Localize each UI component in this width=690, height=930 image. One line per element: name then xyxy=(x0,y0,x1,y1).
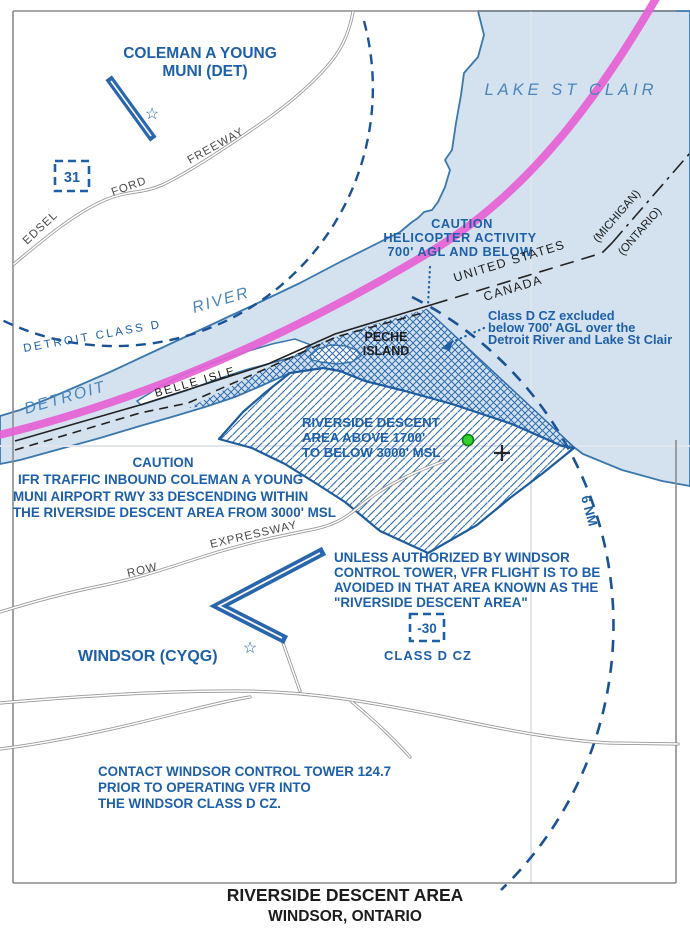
svg-text:MUNI AIRPORT RWY 33 DESCENDING: MUNI AIRPORT RWY 33 DESCENDING WITHIN xyxy=(13,489,308,504)
freeway-road-label: FREEWAY xyxy=(186,126,247,167)
coleman-airport-name-line1: COLEMAN A YOUNG xyxy=(123,45,277,62)
svg-text:CONTACT WINDSOR CONTROL TOWER: CONTACT WINDSOR CONTROL TOWER 124.7 xyxy=(98,764,391,779)
svg-text:HELICOPTER ACTIVITY: HELICOPTER ACTIVITY xyxy=(383,230,536,245)
detroit-altitude-box-label: 31 xyxy=(64,170,80,186)
windsor-airport-name: WINDSOR (CYQG) xyxy=(78,648,218,665)
lake-st-clair-label: LAKE ST CLAIR xyxy=(484,81,657,99)
peche-island-label-line1: PECHE xyxy=(364,330,407,344)
detroit-airport-star-icon: ☆ xyxy=(145,106,159,123)
svg-text:AREA ABOVE 1700': AREA ABOVE 1700' xyxy=(302,430,425,445)
coleman-airport-name-line2: MUNI (DET) xyxy=(162,63,247,80)
svg-text:Detroit River and Lake St Clai: Detroit River and Lake St Clair xyxy=(488,332,672,347)
riverside-descent-area-chart: ☆ ☆ 31 -30 CLASS D CZ COLEMAN A YOUNG MU… xyxy=(0,0,690,930)
svg-text:CONTROL TOWER, VFR FLIGHT IS T: CONTROL TOWER, VFR FLIGHT IS TO BE xyxy=(334,565,600,580)
svg-text:"RIVERSIDE DESCENT AREA": "RIVERSIDE DESCENT AREA" xyxy=(334,595,528,610)
chart-subtitle: WINDSOR, ONTARIO xyxy=(268,908,422,925)
windsor-airport-star-icon: ☆ xyxy=(243,640,257,657)
six-nm-label: 6 NM xyxy=(578,494,601,528)
svg-text:RIVERSIDE DESCENT: RIVERSIDE DESCENT xyxy=(302,415,440,430)
windsor-class-d-cz-label: CLASS D CZ xyxy=(384,648,472,663)
svg-text:UNLESS AUTHORIZED BY WINDSOR: UNLESS AUTHORIZED BY WINDSOR xyxy=(334,550,570,565)
windsor-altitude-box-label: -30 xyxy=(417,621,437,636)
svg-text:AVOIDED IN THAT AREA KNOWN AS: AVOIDED IN THAT AREA KNOWN AS THE xyxy=(334,580,598,595)
chart-title: RIVERSIDE DESCENT AREA xyxy=(227,885,464,905)
windsor-runway-symbol xyxy=(219,553,320,638)
contact-tower-note: CONTACT WINDSOR CONTROL TOWER 124.7 PRIO… xyxy=(98,764,391,811)
svg-text:PRIOR TO OPERATING VFR INTO: PRIOR TO OPERATING VFR INTO xyxy=(98,780,311,795)
svg-text:IFR TRAFFIC INBOUND COLEMAN A: IFR TRAFFIC INBOUND COLEMAN A YOUNG xyxy=(18,472,303,487)
svg-text:CAUTION: CAUTION xyxy=(431,216,493,231)
map-canvas: ☆ ☆ 31 -30 CLASS D CZ COLEMAN A YOUNG MU… xyxy=(0,0,690,930)
unless-authorized-note: UNLESS AUTHORIZED BY WINDSOR CONTROL TOW… xyxy=(334,550,600,610)
svg-text:THE RIVERSIDE DESCENT AREA FRO: THE RIVERSIDE DESCENT AREA FROM 3000' MS… xyxy=(13,505,336,520)
svg-text:THE WINDSOR CLASS D CZ.: THE WINDSOR CLASS D CZ. xyxy=(98,796,281,811)
row-road-label: ROW xyxy=(126,561,159,580)
green-position-dot xyxy=(463,435,474,446)
riverside-descent-area-label: RIVERSIDE DESCENT AREA ABOVE 1700' TO BE… xyxy=(302,415,440,460)
peche-island-label-line2: ISLAND xyxy=(363,344,410,358)
svg-text:CAUTION: CAUTION xyxy=(133,455,194,470)
ford-road-label: FORD xyxy=(110,175,148,199)
svg-text:TO BELOW 3000' MSL: TO BELOW 3000' MSL xyxy=(302,445,440,460)
